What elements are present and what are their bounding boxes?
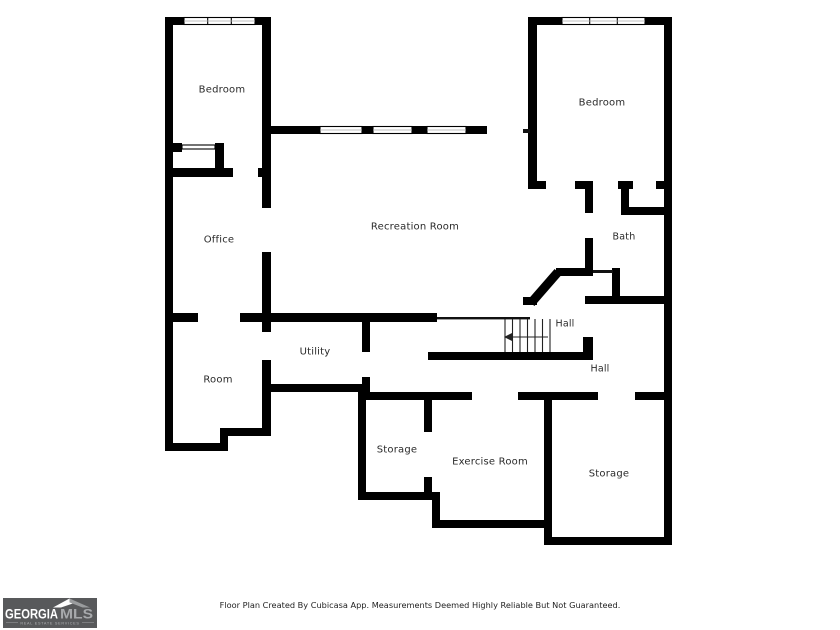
georgia-mls-logo-svg: GEORGIA MLS REAL ESTATE SERVICES: [3, 597, 97, 628]
diagonal-wall: [531, 272, 558, 303]
walls: [165, 17, 672, 545]
window-recreation-1: [320, 127, 362, 134]
room-label-hall-lower: Hall: [590, 364, 609, 375]
room-label-hall-upper: Hall: [555, 319, 574, 330]
window-recreation-2: [373, 127, 412, 134]
window-bedroom-right: [562, 18, 645, 25]
window-recreation-3: [427, 127, 466, 134]
room-label-utility: Utility: [300, 347, 331, 358]
room-label-bath: Bath: [613, 232, 636, 243]
floor-plan-canvas: [0, 0, 840, 630]
room-label-exercise-room: Exercise Room: [452, 457, 528, 468]
thin-walls: [437, 129, 613, 319]
window-bedroom-left: [184, 18, 255, 25]
floor-plan-page: Bedroom Bedroom Office Recreation Room B…: [0, 0, 840, 630]
logo-brand-primary: GEORGIA: [5, 607, 58, 622]
logo-tagline: REAL ESTATE SERVICES: [20, 621, 79, 625]
stairs-direction-arrow: [504, 333, 548, 342]
room-label-bedroom-right: Bedroom: [579, 98, 626, 109]
room-label-office: Office: [204, 235, 235, 246]
room-label-room: Room: [203, 375, 232, 386]
room-label-recreation: Recreation Room: [371, 222, 459, 233]
georgia-mls-logo: GEORGIA MLS REAL ESTATE SERVICES: [3, 597, 97, 628]
room-label-bedroom-left: Bedroom: [199, 85, 246, 96]
closet-door-line: [182, 145, 215, 149]
room-label-storage-center: Storage: [377, 445, 418, 456]
logo-brand-secondary: MLS: [60, 607, 93, 622]
disclaimer-text: Floor Plan Created By Cubicasa App. Meas…: [220, 600, 621, 610]
room-label-storage-right: Storage: [589, 469, 630, 480]
